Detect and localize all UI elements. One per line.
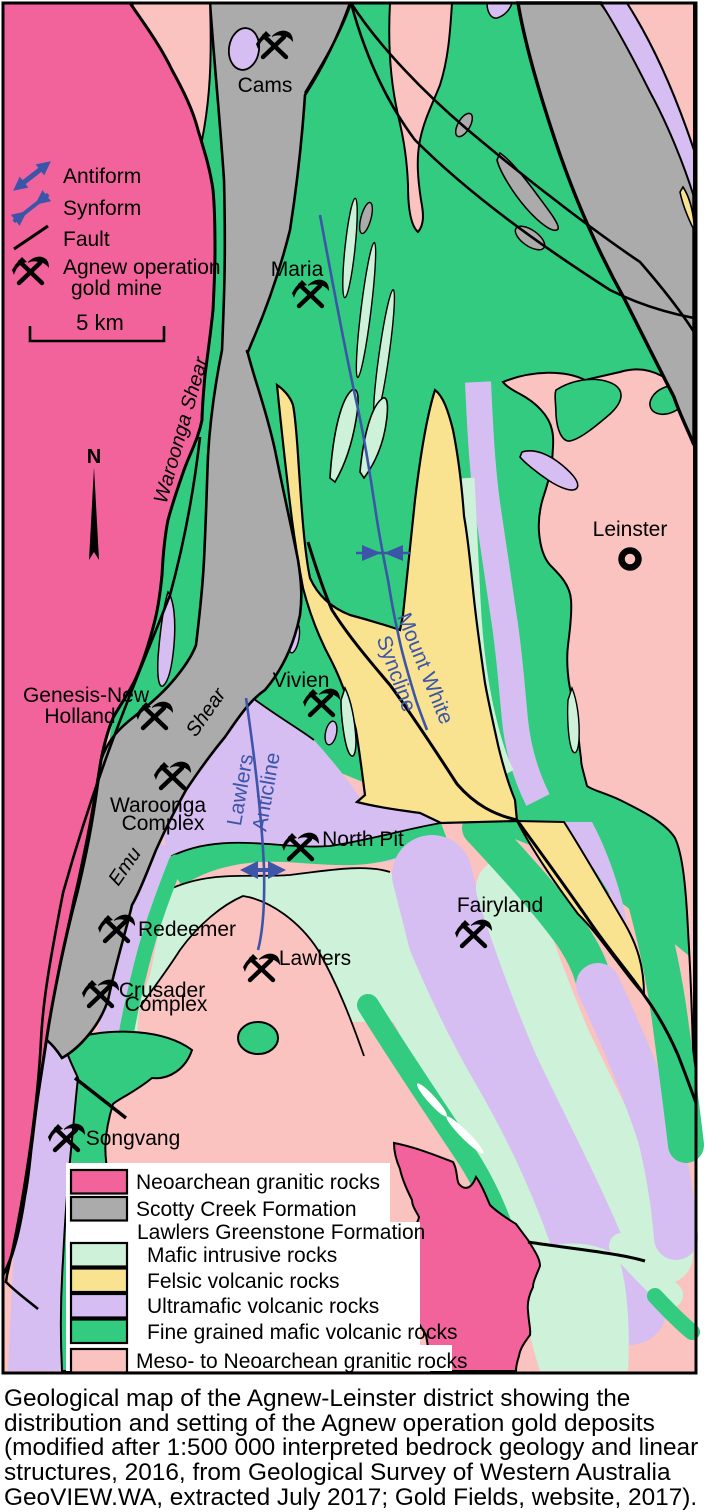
svg-text:Felsic volcanic rocks: Felsic volcanic rocks — [147, 1270, 340, 1293]
svg-text:Lawlers Greenstone Formation: Lawlers Greenstone Formation — [137, 1221, 425, 1244]
svg-text:Mafic intrusive rocks: Mafic intrusive rocks — [147, 1244, 337, 1267]
svg-text:Cams: Cams — [238, 74, 293, 97]
svg-text:Synform: Synform — [63, 197, 141, 220]
svg-text:Complex: Complex — [122, 812, 205, 835]
svg-text:Genesis-New: Genesis-New — [23, 684, 150, 707]
svg-text:Fault: Fault — [63, 228, 110, 251]
svg-text:Complex: Complex — [125, 993, 208, 1016]
svg-text:Vivien: Vivien — [273, 669, 330, 692]
svg-text:Redeemer: Redeemer — [138, 918, 236, 941]
svg-text:Lawlers: Lawlers — [279, 947, 351, 970]
svg-text:Scotty Creek Formation: Scotty Creek Formation — [136, 1198, 357, 1221]
svg-text:N: N — [87, 446, 101, 468]
svg-text:Neoarchean granitic rocks: Neoarchean granitic rocks — [136, 1171, 380, 1194]
svg-text:Holland: Holland — [44, 705, 115, 728]
svg-text:Fairyland: Fairyland — [457, 894, 543, 917]
svg-text:Meso- to Neoarchean granitic r: Meso- to Neoarchean granitic rocks — [136, 1350, 467, 1373]
svg-text:5 km: 5 km — [76, 310, 124, 335]
svg-text:Leinster: Leinster — [593, 518, 668, 541]
svg-text:Songvang: Songvang — [86, 1127, 181, 1150]
svg-text:North Pit: North Pit — [322, 828, 404, 851]
svg-text:Fine grained mafic volcanic ro: Fine grained mafic volcanic rocks — [147, 1321, 457, 1344]
svg-text:Agnew operation: Agnew operation — [63, 256, 221, 279]
svg-text:Antiform: Antiform — [63, 165, 141, 188]
svg-text:Maria: Maria — [271, 258, 324, 281]
svg-text:Ultramafic volcanic rocks: Ultramafic volcanic rocks — [147, 1295, 379, 1318]
svg-text:gold mine: gold mine — [71, 277, 162, 300]
